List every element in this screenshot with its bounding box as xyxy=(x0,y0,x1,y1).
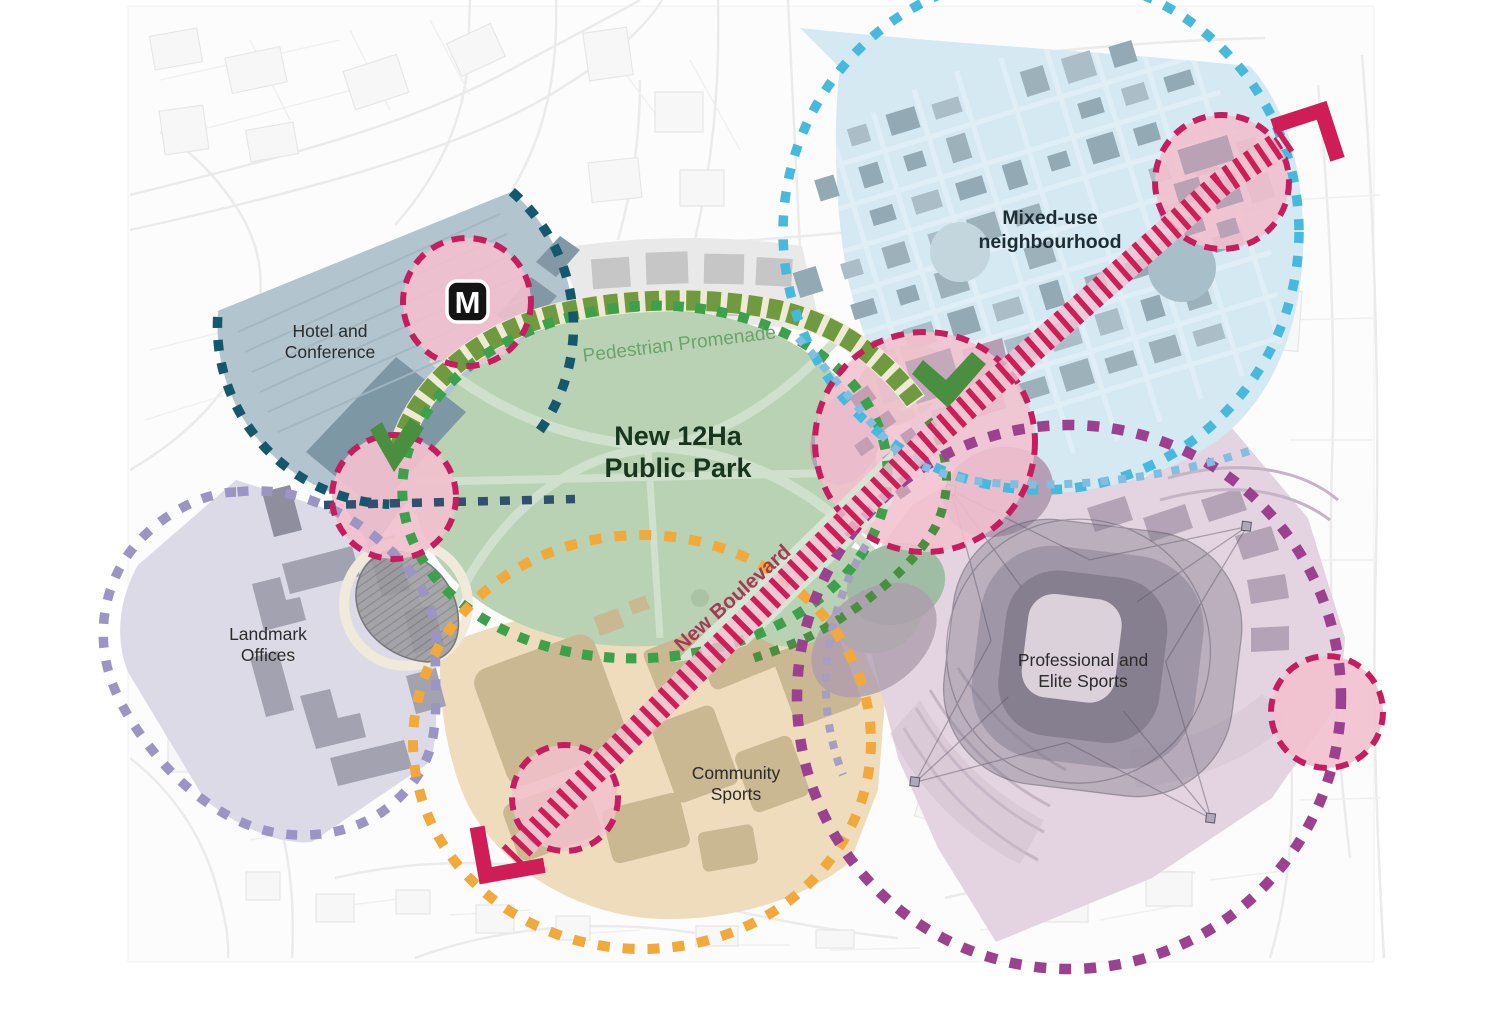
svg-text:Elite Sports: Elite Sports xyxy=(1038,671,1128,691)
svg-text:New 12Ha: New 12Ha xyxy=(614,421,743,451)
svg-text:Hotel and: Hotel and xyxy=(293,321,368,341)
svg-text:Professional and: Professional and xyxy=(1018,650,1148,670)
svg-text:Community: Community xyxy=(692,763,781,783)
svg-text:Sports: Sports xyxy=(711,784,762,804)
svg-text:Landmark: Landmark xyxy=(229,624,307,644)
svg-text:Public Park: Public Park xyxy=(604,453,752,483)
svg-text:M: M xyxy=(455,285,481,320)
svg-text:Conference: Conference xyxy=(285,342,375,362)
svg-text:neighbourhood: neighbourhood xyxy=(979,231,1122,253)
svg-text:Mixed-use: Mixed-use xyxy=(1002,207,1098,229)
svg-text:Offices: Offices xyxy=(241,645,295,665)
